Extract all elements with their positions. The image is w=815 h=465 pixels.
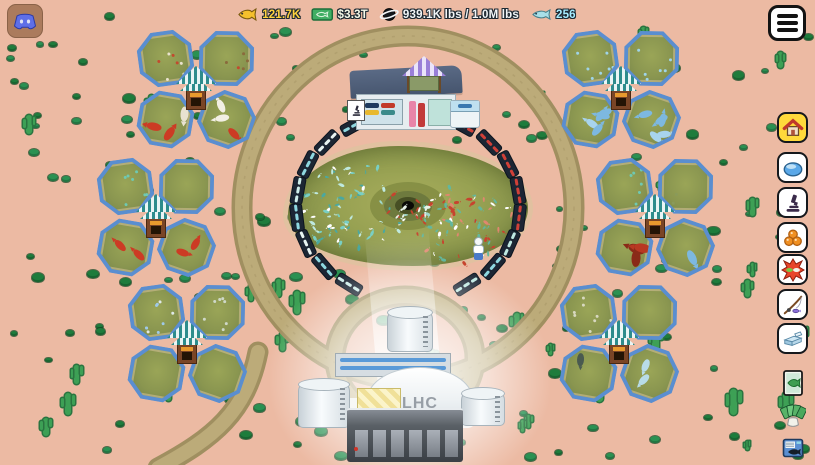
fish-spot bbox=[223, 300, 226, 303]
sidebar-roe-button[interactable] bbox=[777, 222, 808, 253]
vent bbox=[427, 430, 440, 457]
hud-stat-value: $3.3T bbox=[338, 9, 368, 21]
fish-spot bbox=[171, 54, 174, 57]
display-fish bbox=[365, 103, 379, 108]
fish-spot bbox=[166, 77, 169, 80]
hut-sign bbox=[190, 93, 202, 97]
sidebar-fish-index-button[interactable] bbox=[777, 431, 808, 462]
stall-table bbox=[409, 76, 439, 91]
hatchery-hut[interactable] bbox=[176, 66, 216, 112]
fish-spot bbox=[593, 319, 596, 322]
fish-spot bbox=[644, 73, 647, 76]
fish bbox=[215, 98, 227, 114]
hud-stat-weight: 939.1K lbs / 1.0M lbs bbox=[379, 6, 519, 23]
pond-cluster-bottom-left bbox=[128, 284, 246, 402]
hut-door bbox=[614, 352, 624, 360]
fish bbox=[113, 238, 128, 253]
hut-sign bbox=[150, 221, 162, 225]
fish-spot bbox=[640, 168, 643, 171]
tickets-icon bbox=[782, 328, 804, 350]
game-viewport: LHC 121.7K$3.3T939.1K lbs / 1.0M lbs256 bbox=[0, 0, 815, 465]
hatchery-hut[interactable] bbox=[599, 320, 639, 366]
sidebar-fishing-button[interactable] bbox=[777, 289, 808, 320]
fish-spot bbox=[591, 77, 594, 80]
shop-front bbox=[356, 94, 456, 130]
fish-fight-icon bbox=[781, 258, 805, 282]
fish-display-window bbox=[361, 99, 403, 125]
hut-roof bbox=[136, 194, 176, 212]
microscope-sign bbox=[347, 100, 365, 121]
pipe bbox=[340, 358, 446, 362]
vent bbox=[391, 430, 404, 457]
vent bbox=[445, 430, 458, 457]
microscope-icon bbox=[782, 192, 804, 214]
sidebar-home-button[interactable] bbox=[777, 112, 808, 143]
hatchery-hut[interactable] bbox=[136, 194, 176, 240]
fish-spot bbox=[127, 175, 130, 178]
fish-spot bbox=[645, 78, 648, 81]
hut-roof bbox=[635, 194, 675, 212]
hut-sign bbox=[613, 347, 625, 351]
fish-spot bbox=[640, 182, 643, 185]
cooler-lid bbox=[451, 101, 479, 112]
fish-logo bbox=[458, 104, 472, 108]
fish-spot bbox=[586, 67, 589, 70]
hud-stat-value: 121.7K bbox=[262, 9, 300, 21]
fish bbox=[640, 358, 651, 372]
fish-spot bbox=[246, 59, 249, 62]
facility-base-building bbox=[347, 408, 463, 462]
pond-cluster-mid-left bbox=[97, 158, 215, 276]
sidebar-fish-card-button[interactable] bbox=[777, 367, 808, 398]
fish-eggs-icon bbox=[782, 227, 804, 249]
fish bbox=[162, 125, 177, 142]
hut-body bbox=[645, 218, 665, 238]
hatchery-hut[interactable] bbox=[167, 320, 207, 366]
discord-button[interactable] bbox=[7, 4, 43, 38]
storage-tank bbox=[387, 310, 433, 352]
hut-body bbox=[186, 90, 206, 110]
fishing-rod-icon bbox=[782, 294, 804, 316]
top-hud: 121.7K$3.3T939.1K lbs / 1.0M lbs256 bbox=[236, 6, 576, 23]
fish-spot bbox=[168, 52, 171, 55]
hud-stat-value: 256 bbox=[556, 9, 576, 21]
hut-body bbox=[609, 344, 629, 364]
fish-spot bbox=[146, 330, 149, 333]
card-hand-icon bbox=[780, 402, 806, 428]
fish-spot bbox=[213, 300, 216, 303]
storage-tank bbox=[461, 391, 505, 426]
sidebar bbox=[777, 0, 809, 465]
storage-tank bbox=[298, 382, 350, 428]
sidebar-research-button[interactable] bbox=[777, 187, 808, 218]
sidebar-battle-button[interactable] bbox=[777, 254, 808, 285]
pond-cluster-mid-right bbox=[596, 158, 714, 276]
warning-light bbox=[354, 447, 358, 451]
fish-spot bbox=[145, 326, 148, 329]
shop-machine bbox=[418, 103, 425, 127]
hut-sign bbox=[181, 347, 193, 351]
hut-door bbox=[616, 98, 626, 106]
pond-cluster-top-left bbox=[137, 30, 255, 148]
fish-spot bbox=[242, 52, 245, 55]
fish-spot bbox=[576, 51, 579, 54]
hud-stat-fish: 256 bbox=[530, 8, 576, 21]
hut-roof bbox=[176, 66, 216, 84]
fish-spot bbox=[225, 61, 228, 64]
hatchery-hut[interactable] bbox=[601, 66, 641, 112]
gold-fish-icon bbox=[236, 7, 258, 22]
fish-spot bbox=[595, 315, 598, 318]
microscope-icon bbox=[350, 103, 363, 118]
hut-sign bbox=[649, 221, 661, 225]
display-fish bbox=[365, 110, 379, 115]
fish-spot bbox=[125, 203, 128, 206]
fish-spot bbox=[664, 69, 667, 72]
fish-spot bbox=[669, 58, 672, 61]
fish-card-icon bbox=[781, 368, 805, 398]
fish-spot bbox=[161, 322, 164, 325]
fish-spot bbox=[573, 314, 576, 317]
hut-door bbox=[650, 226, 660, 234]
home-icon bbox=[782, 117, 804, 139]
hut-door bbox=[151, 226, 161, 234]
fish-spot bbox=[659, 69, 662, 72]
planet-icon bbox=[379, 6, 399, 23]
cash-icon bbox=[312, 7, 334, 22]
fish-spot bbox=[224, 322, 227, 325]
fish-spot bbox=[237, 66, 240, 69]
fish-spot bbox=[582, 297, 585, 300]
vent bbox=[355, 430, 368, 457]
fish bbox=[131, 248, 146, 263]
fish-spot bbox=[131, 178, 134, 181]
fish-spot bbox=[629, 174, 632, 177]
sidebar-ponds-button[interactable] bbox=[777, 152, 808, 183]
fish-spot bbox=[157, 331, 160, 334]
fish-spot bbox=[637, 49, 640, 52]
fish bbox=[189, 236, 201, 250]
fish bbox=[146, 121, 162, 132]
vent bbox=[373, 430, 386, 457]
shopkeeper bbox=[409, 101, 416, 127]
sidebar-card-hand-button[interactable] bbox=[777, 399, 808, 430]
blue-fish-icon bbox=[530, 8, 552, 21]
fish-spot bbox=[171, 311, 174, 314]
display-fish bbox=[381, 110, 395, 115]
hud-stat-value: 939.1K lbs / 1.0M lbs bbox=[403, 9, 519, 21]
fish-spot bbox=[222, 328, 225, 331]
fish-spot bbox=[675, 193, 678, 196]
vent bbox=[409, 430, 422, 457]
hut-roof bbox=[599, 320, 639, 338]
hud-stat-cash: $3.3T bbox=[312, 7, 368, 22]
fish-spot bbox=[605, 52, 608, 55]
hut-body bbox=[146, 218, 166, 238]
hut-body bbox=[611, 90, 631, 110]
sidebar-tickets-button[interactable] bbox=[777, 323, 808, 354]
pond-dome-icon bbox=[782, 157, 804, 179]
pond-cluster-top-right bbox=[562, 30, 680, 148]
discord-icon bbox=[13, 12, 37, 30]
fish bbox=[577, 353, 584, 366]
fish-spot bbox=[175, 61, 178, 64]
hut-roof bbox=[167, 320, 207, 338]
hut-sign bbox=[615, 93, 627, 97]
fish-spot bbox=[158, 300, 161, 303]
fish bbox=[685, 248, 699, 266]
hud-stat-coins: 121.7K bbox=[236, 7, 300, 22]
fish bbox=[226, 126, 241, 141]
fish-index-icon bbox=[780, 435, 806, 459]
fish-spot bbox=[242, 67, 245, 70]
character-legs bbox=[474, 253, 483, 260]
market-stall bbox=[402, 56, 446, 96]
fish-spot bbox=[157, 59, 160, 62]
collider-facility[interactable]: LHC bbox=[285, 280, 535, 465]
player-character bbox=[472, 237, 485, 263]
hut-door bbox=[191, 98, 201, 106]
hut-roof bbox=[601, 66, 641, 84]
fish-spot bbox=[589, 330, 592, 333]
fish bbox=[215, 113, 230, 122]
fish-spot bbox=[582, 303, 585, 306]
fish-spot bbox=[135, 170, 138, 173]
fish bbox=[656, 130, 671, 138]
hatchery-hut[interactable] bbox=[635, 194, 675, 240]
fish-cooler bbox=[450, 100, 480, 128]
pond-cluster-bottom-right bbox=[560, 284, 678, 402]
shop-counter bbox=[428, 99, 452, 126]
hut-door bbox=[182, 352, 192, 360]
hut-body bbox=[177, 344, 197, 364]
stall-roof bbox=[402, 56, 446, 76]
display-fish bbox=[381, 103, 395, 108]
fish-spot bbox=[154, 303, 157, 306]
fish-spot bbox=[179, 61, 182, 64]
fish bbox=[176, 247, 190, 257]
fish-market-building[interactable] bbox=[350, 56, 482, 132]
